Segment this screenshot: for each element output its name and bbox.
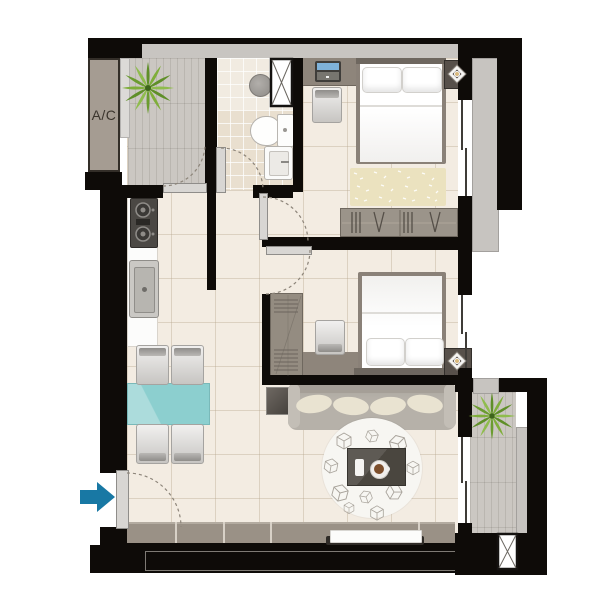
chair-back	[174, 453, 201, 461]
ac-label: A/C	[92, 107, 117, 123]
dining-chair	[136, 345, 169, 385]
duvet-fold	[362, 312, 442, 314]
sofa-cushion	[369, 395, 407, 417]
balcony-door-leaf	[163, 183, 207, 193]
bedroom2-door-leaf	[266, 246, 312, 255]
washbasin-icon	[264, 146, 293, 180]
bedroom2-wardrobe	[270, 293, 303, 377]
cup-handle	[384, 466, 390, 472]
remote-icon	[355, 459, 364, 476]
bedroom1-chair	[312, 87, 342, 123]
entry-door-leaf	[116, 470, 129, 529]
entry-arrow-icon	[80, 482, 115, 512]
coffee-table	[347, 448, 406, 486]
chair-back	[315, 90, 339, 98]
wall-balcony-bottom-top	[455, 378, 547, 392]
bedroom1-window-sill	[472, 58, 499, 252]
sofa-cushion	[295, 393, 333, 416]
wall-kitchen-stub	[207, 188, 216, 290]
chair-back	[318, 344, 342, 352]
bedroom1-rug	[350, 168, 446, 206]
window-glazing	[462, 100, 466, 523]
wall-east-upper	[458, 58, 472, 100]
wall-bedroom2-south	[262, 375, 458, 385]
ac-window-strip	[120, 58, 130, 138]
coffee-cup-icon	[374, 464, 384, 474]
ac-unit: A/C	[88, 58, 120, 172]
chair-back	[139, 453, 166, 461]
wall-east-mid1	[458, 196, 472, 295]
wall-bedroom1-bottom	[310, 237, 458, 250]
wall-bedroom2-west	[262, 294, 270, 385]
stove-icon	[130, 198, 158, 248]
dining-chair	[171, 345, 204, 385]
wall-bedroom1-west	[293, 38, 303, 192]
pillow	[362, 67, 402, 93]
basin-tap	[281, 161, 289, 163]
balcony-bottom-deck	[470, 392, 516, 533]
floor-plan: A/C	[0, 0, 600, 600]
wall-balcony-bottom-bottom	[455, 533, 547, 575]
wall-left	[100, 188, 127, 473]
bedroom2-desk	[303, 352, 358, 377]
chair-back	[139, 348, 166, 356]
sink-drain	[142, 287, 147, 292]
top-window-band	[142, 44, 458, 58]
sofa-cushion	[332, 395, 370, 417]
bedroom1-door-leaf	[259, 193, 268, 240]
dining-chair	[171, 424, 204, 464]
console-separator	[175, 522, 177, 543]
pillow	[366, 338, 405, 366]
tv-icon	[330, 530, 422, 543]
chair-back	[174, 348, 201, 356]
laptop-touchpad	[326, 76, 329, 78]
bedroom2-chair	[315, 320, 345, 355]
bottom-ledge	[145, 551, 463, 571]
console-separator	[223, 522, 225, 543]
balcony-top-deck	[128, 58, 205, 190]
balcony-top-notch	[473, 378, 499, 394]
pillow	[402, 67, 442, 93]
flush-button	[283, 128, 287, 132]
console-separator	[270, 522, 272, 543]
toilet-tank	[277, 114, 294, 147]
wall-right-outer	[497, 38, 522, 210]
pillow	[405, 338, 444, 366]
duvet-fold	[360, 105, 442, 107]
dining-chair	[136, 424, 169, 464]
dining-table	[127, 383, 210, 425]
bedroom1-wardrobe	[340, 208, 458, 237]
wall-balcony-bottom	[122, 185, 163, 198]
laptop-screen	[317, 63, 339, 70]
bathroom-door-leaf	[216, 147, 226, 193]
sink-icon	[129, 260, 159, 318]
wall-left-below-door	[100, 527, 127, 545]
laptop-icon	[315, 61, 341, 82]
shower-head-icon	[249, 74, 272, 97]
sofa-cushion	[406, 393, 444, 416]
basin-inner	[269, 151, 289, 176]
